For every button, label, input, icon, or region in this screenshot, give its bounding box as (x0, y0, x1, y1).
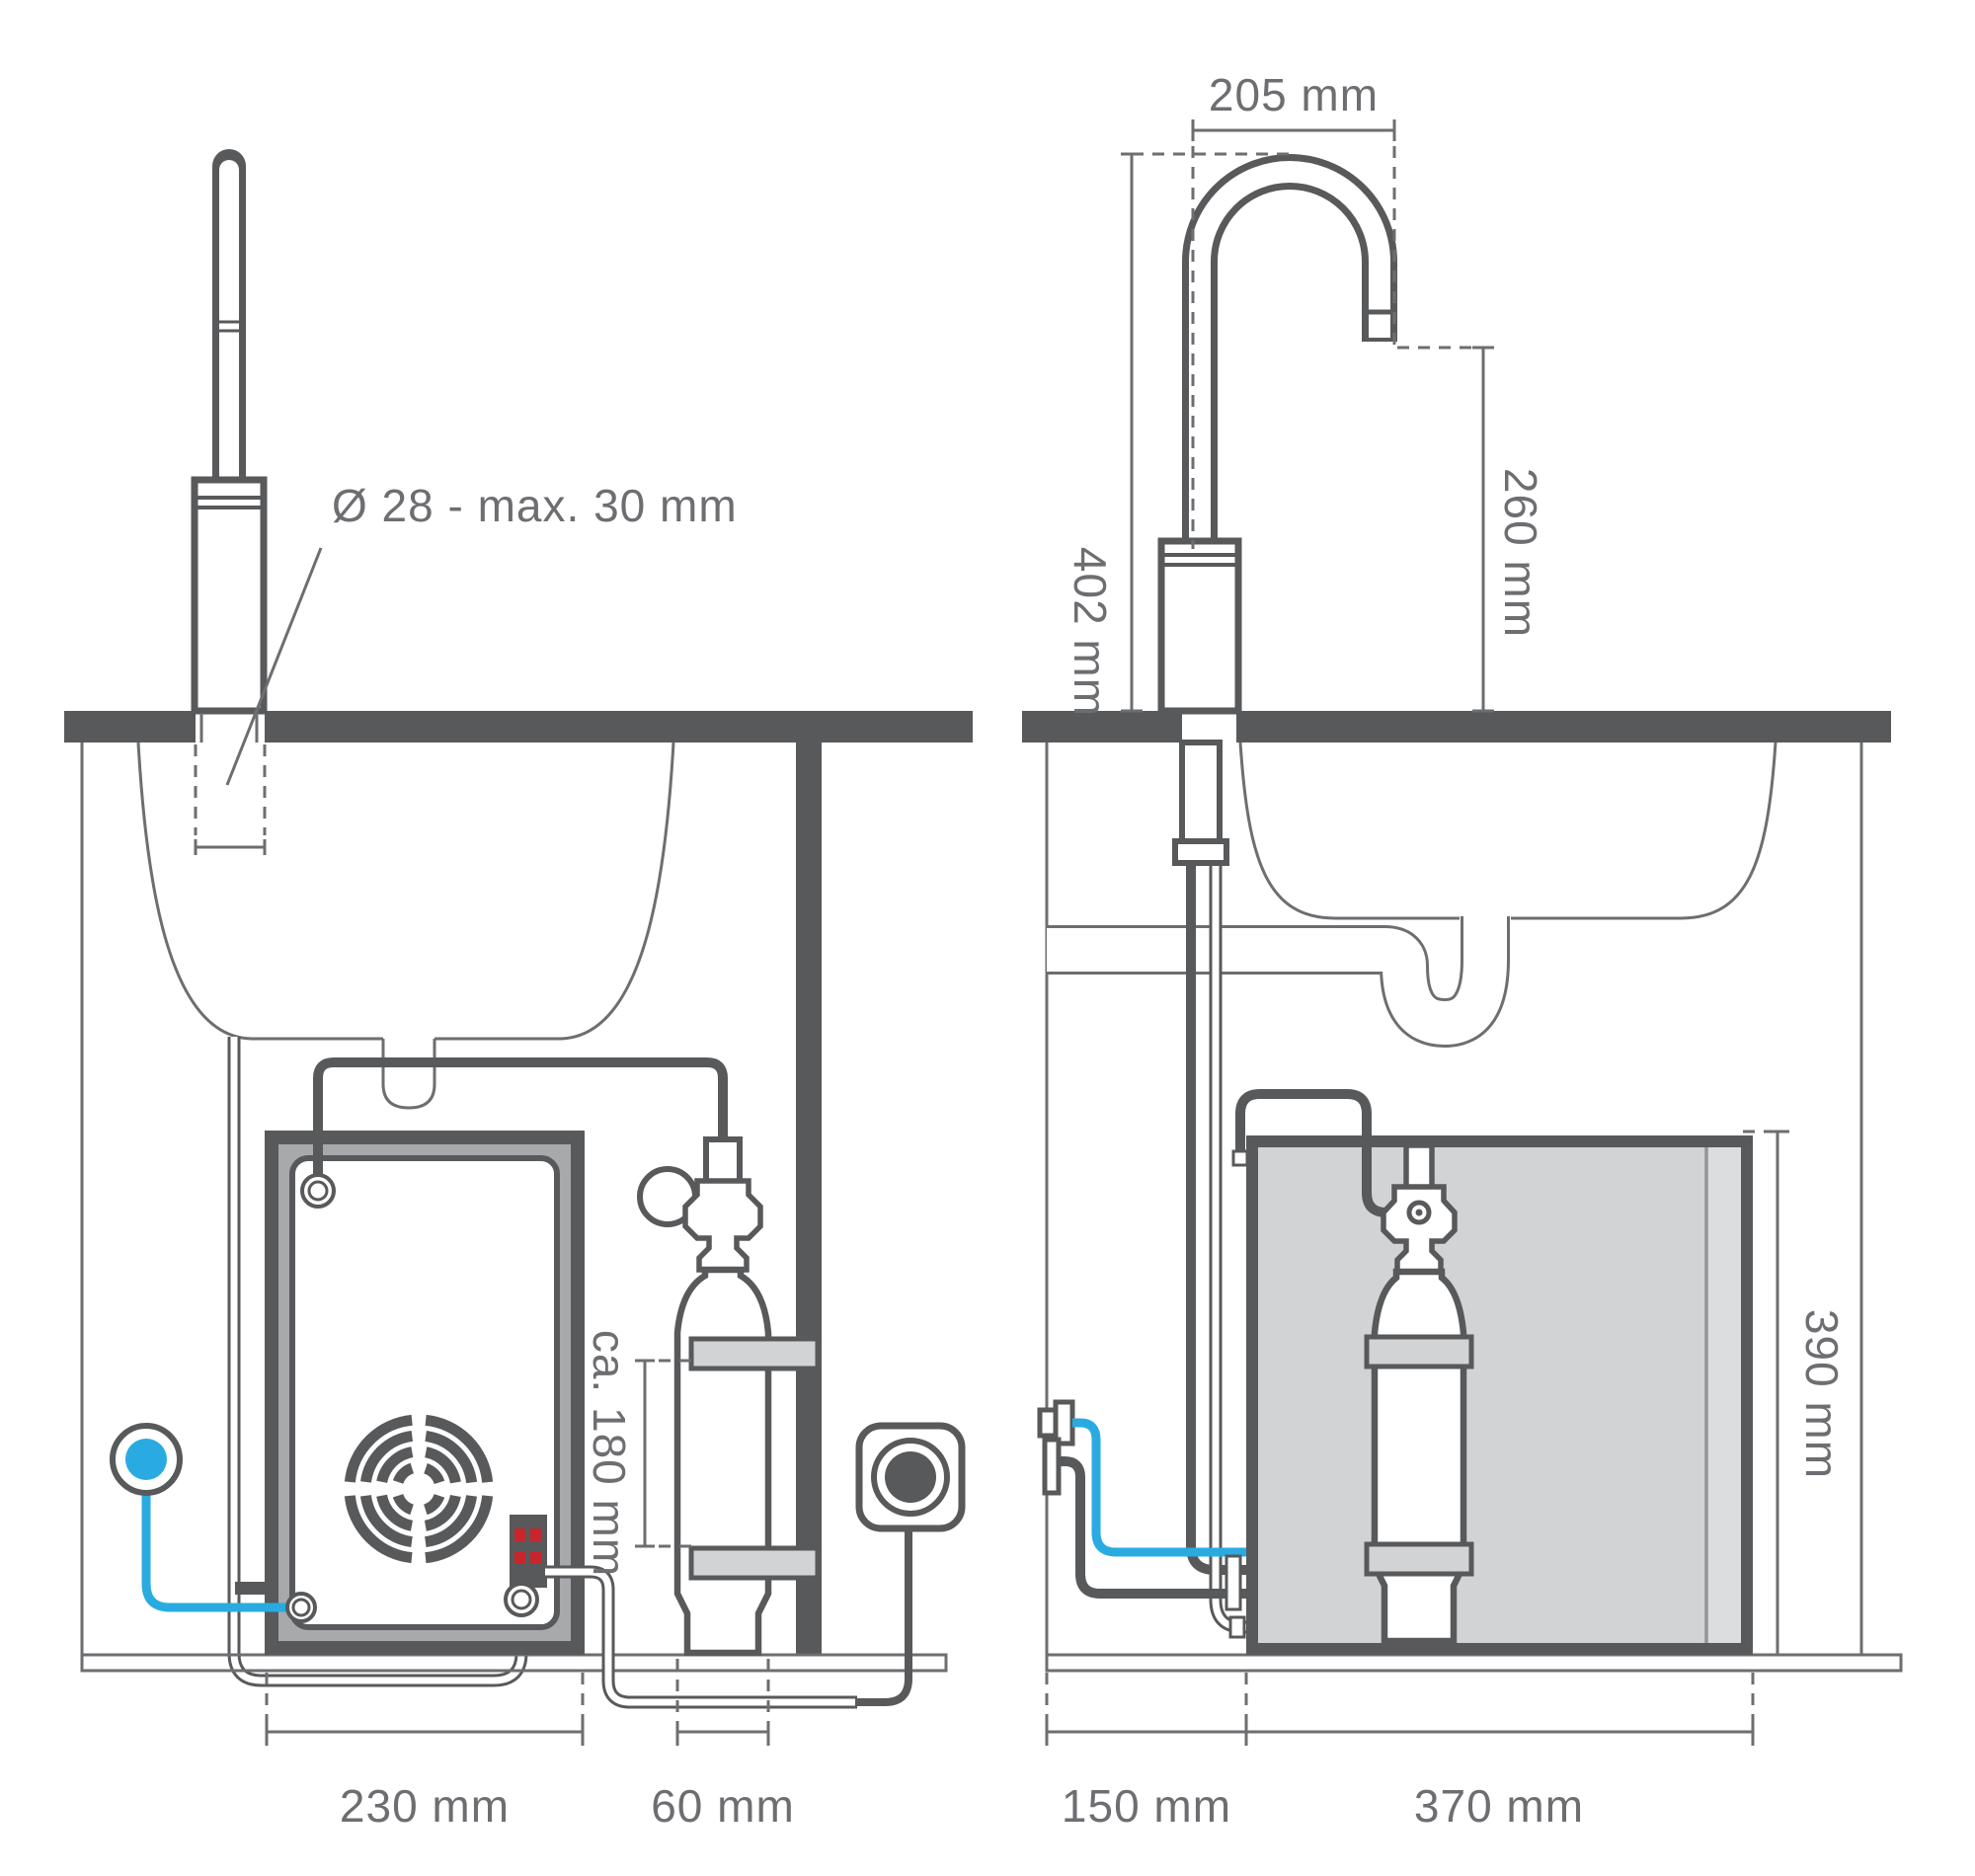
power-outlet-icon (859, 1426, 962, 1528)
pressure-regulator-icon (640, 1139, 760, 1270)
cabinet-base-shelf-side (1047, 1655, 1901, 1671)
dim-label-unit-width: 230 mm (340, 1780, 510, 1832)
co2-cylinder-front (677, 1270, 768, 1653)
dim-label-tap-hole: Ø 28 - max. 30 mm (332, 480, 738, 531)
drain-trap (1047, 916, 1485, 1023)
dimension-unit-height: 390 mm (1743, 1132, 1848, 1655)
dim-label-spout-reach: 205 mm (1209, 69, 1379, 120)
dim-label-clamp-distance: ca. 180 mm (584, 1330, 635, 1577)
unit-top-port (302, 1175, 334, 1207)
dim-label-unit-depth: 370 mm (1414, 1780, 1584, 1832)
cooler-unit-front (235, 1131, 585, 1655)
cooler-unit-side (1246, 1135, 1753, 1655)
dim-label-unit-height: 390 mm (1796, 1309, 1848, 1479)
cabinet-right-wall (796, 743, 822, 1655)
front-view: ca. 180 mm 230 mm 60 mm Ø 28 - max. 30 m… (64, 166, 973, 1832)
dim-label-side-clearance: 150 mm (1062, 1780, 1231, 1832)
faucet-shank (1182, 743, 1220, 841)
faucet-body (195, 480, 264, 711)
faucet-front (195, 166, 264, 743)
installation-diagram: ca. 180 mm 230 mm 60 mm Ø 28 - max. 30 m… (0, 0, 1975, 1876)
dimension-cylinder-width: 60 mm (651, 1659, 795, 1832)
side-view: 205 mm 402 mm 260 mm 390 mm (1022, 69, 1901, 1832)
water-supply-point-icon (113, 1426, 180, 1493)
dim-label-spout-height: 260 mm (1495, 468, 1546, 638)
dimension-unit-width: 230 mm (267, 1673, 583, 1832)
unit-water-port (287, 1594, 315, 1621)
drain-tailpipe (383, 1039, 434, 1108)
wall-plate (1045, 1440, 1059, 1493)
countertop-side (1022, 711, 1891, 743)
installation-diagram-page: ca. 180 mm 230 mm 60 mm Ø 28 - max. 30 m… (0, 0, 1975, 1876)
tube-fitting (1230, 1617, 1244, 1637)
dimension-spout-height: 260 mm (1397, 348, 1546, 711)
water-supply-tube-side (1072, 1423, 1250, 1552)
sink-basin-front (138, 743, 673, 1108)
dim-label-cylinder-width: 60 mm (651, 1780, 795, 1832)
tube-bracket (1226, 1556, 1240, 1609)
co2-cylinder-side (1367, 1145, 1471, 1641)
unit-bottom-port (506, 1584, 537, 1615)
drain-stub (235, 1582, 267, 1595)
co2-fitting (1233, 1151, 1247, 1165)
led-indicator-panel (510, 1515, 547, 1588)
faucet-water-tube-side (1216, 863, 1250, 1627)
gooseneck-faucet (1161, 172, 1397, 863)
dim-label-tap-height: 402 mm (1065, 547, 1116, 717)
sink-basin-side (1240, 743, 1776, 918)
dimension-side-clearance: 150 mm 370 mm (1047, 1673, 1753, 1832)
